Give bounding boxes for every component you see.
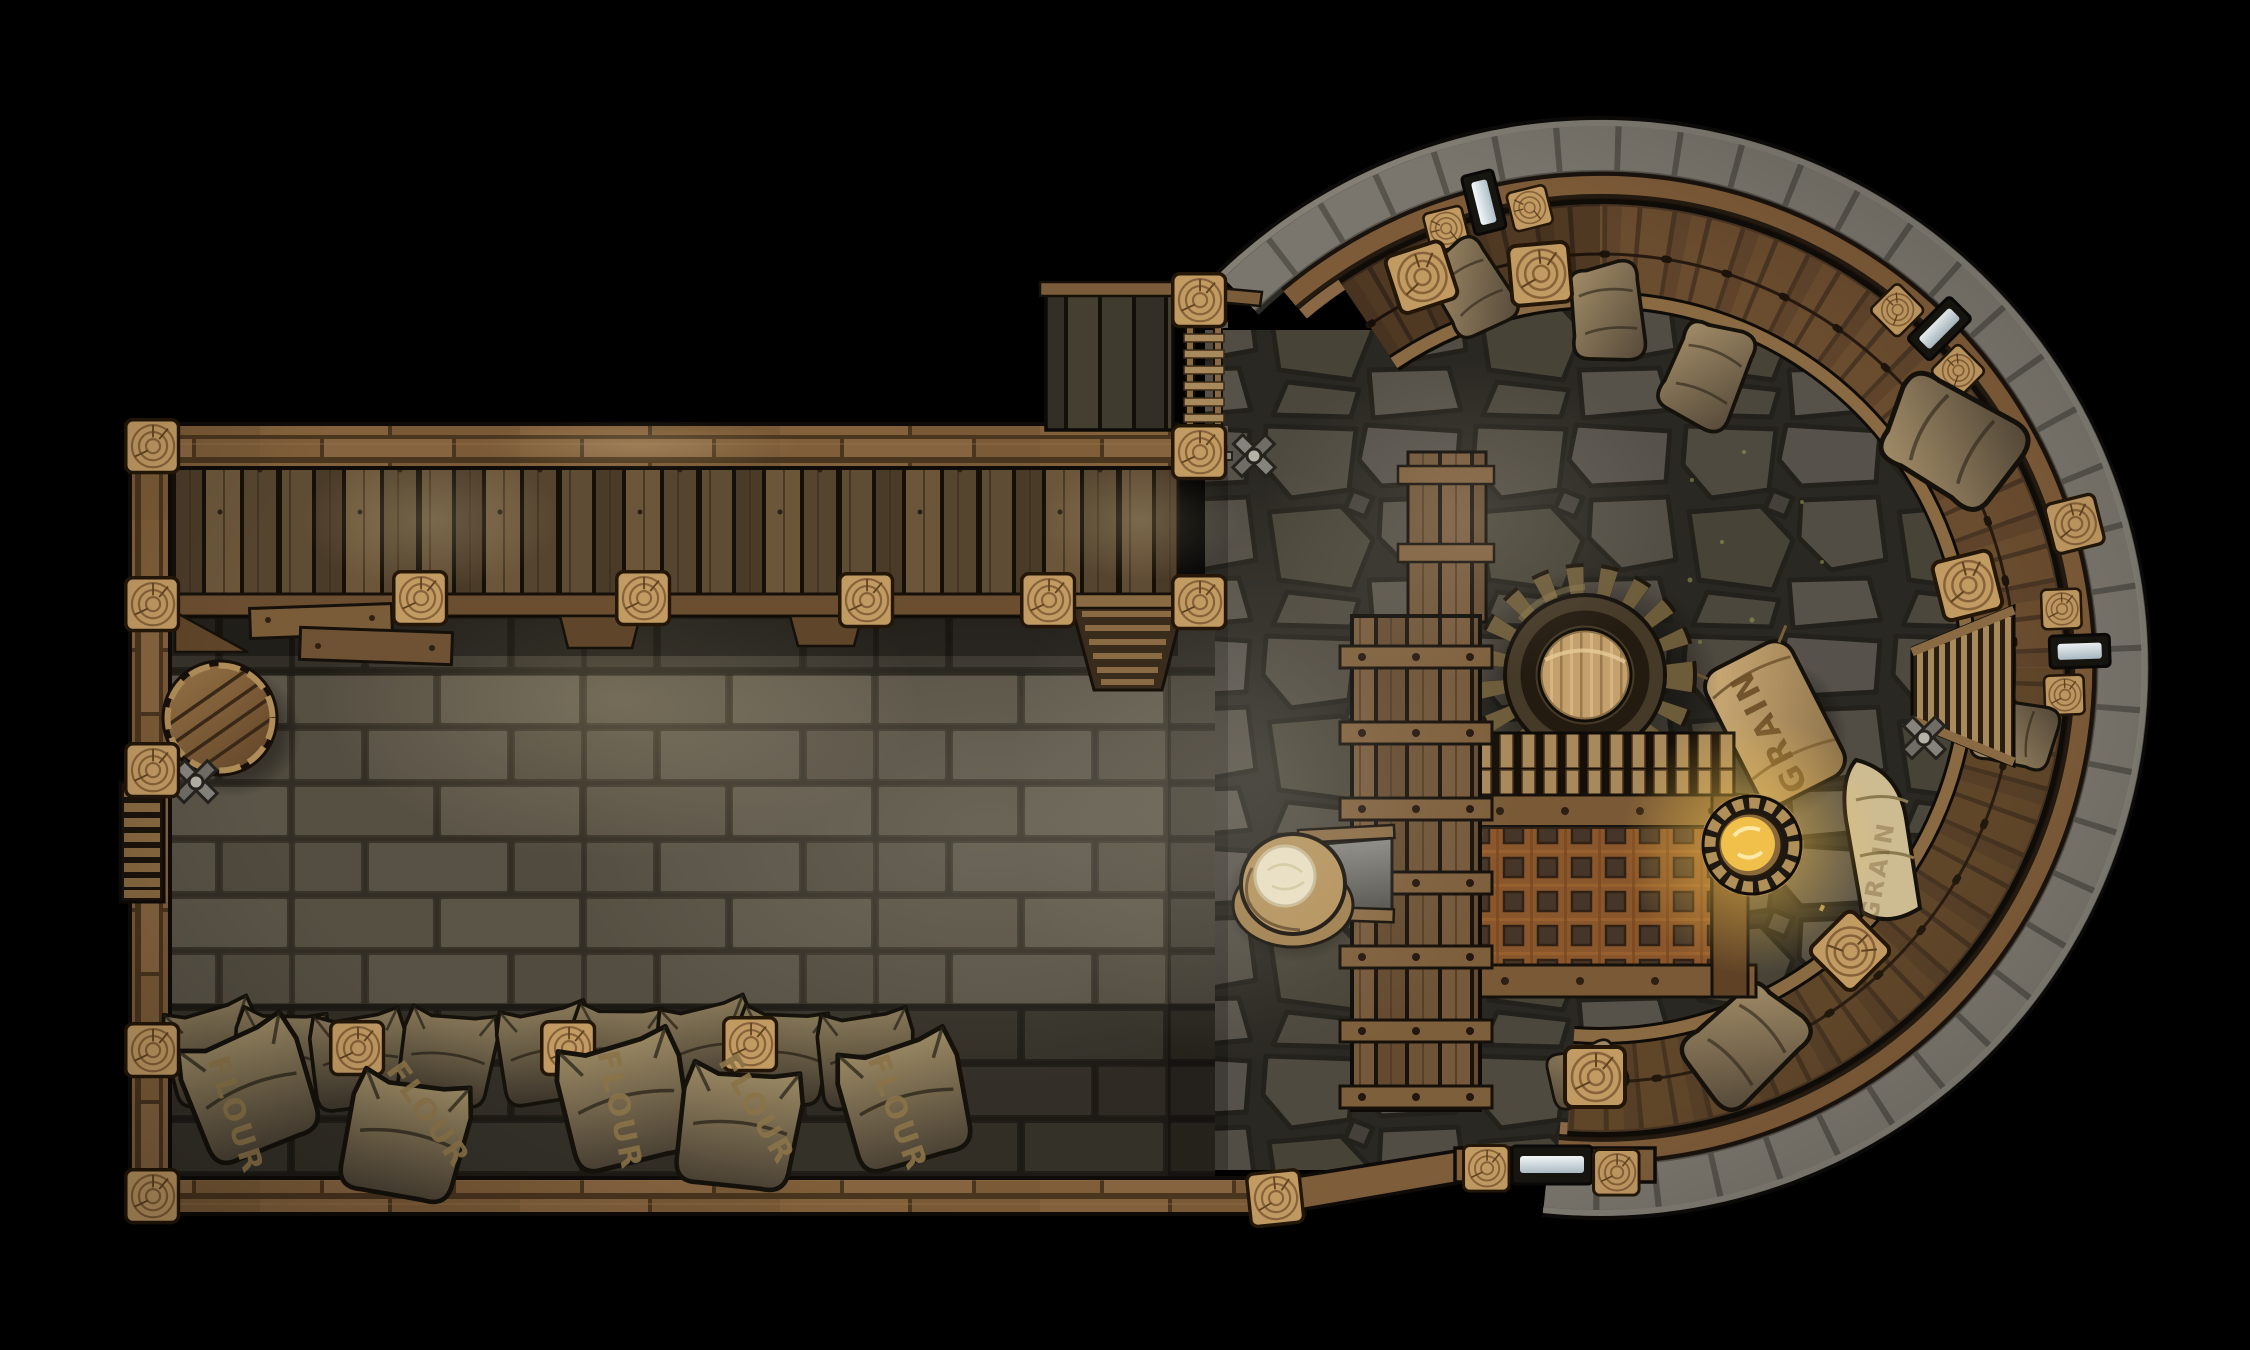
vignette-overlay xyxy=(0,0,2250,1350)
battle-map-windmill: GRAIN GRAIN xyxy=(0,0,2250,1350)
map-canvas: GRAIN GRAIN xyxy=(0,0,2250,1350)
